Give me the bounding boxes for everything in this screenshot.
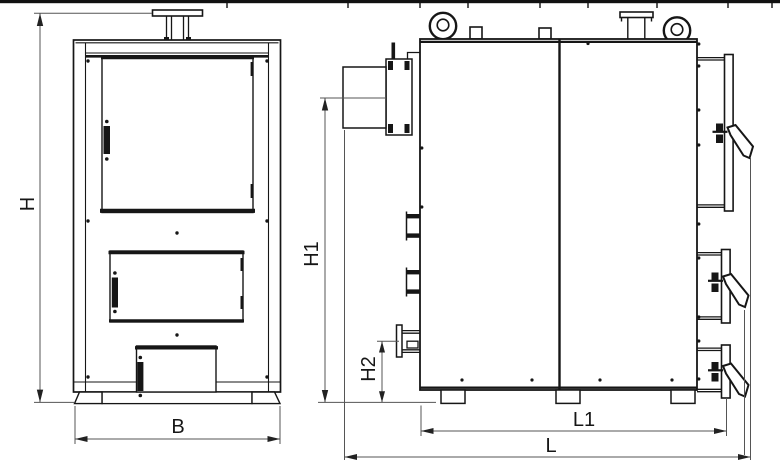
dimension-h-label: H (17, 197, 39, 211)
latch-block (712, 373, 719, 382)
arrowhead (75, 436, 88, 442)
side-foot-center (556, 390, 580, 403)
front-chimney-flange (153, 10, 203, 16)
dimension-l-label: L (545, 435, 556, 457)
side-chimney-pipe (622, 18, 652, 40)
side-foot-right (671, 390, 695, 403)
handle-pin (113, 310, 117, 314)
front-view (74, 10, 281, 404)
handle-pin (113, 271, 117, 275)
body-corner-step (408, 53, 421, 60)
side-door-upper (697, 55, 753, 212)
dimension-h1-label: H1 (301, 241, 323, 267)
arrowhead (714, 428, 727, 434)
top-border (0, 0, 780, 8)
front-ash-door-panel (137, 346, 217, 392)
handle-pin (105, 120, 109, 124)
front-middle-door-handle (112, 278, 118, 308)
latch-block (712, 284, 719, 293)
front-upper-door-handle (104, 126, 111, 154)
flue-mount-plate (386, 59, 412, 135)
dimension-l1-label: L1 (573, 409, 595, 431)
latch-block (716, 135, 723, 144)
dimension-b: B (75, 406, 280, 444)
arrowhead (421, 428, 434, 434)
dimension-b-label: B (171, 416, 184, 438)
side-chimney-flange (620, 12, 653, 18)
lifting-eye-left-hole (437, 19, 449, 31)
top-border-ticks (227, 3, 772, 8)
lifting-eye-right-hole (671, 24, 683, 36)
side-door-lower (697, 345, 749, 398)
boiler-drawing: H B H1 H2 L1 (0, 0, 780, 474)
front-middle-door-panel (110, 251, 243, 322)
side-feet (441, 390, 695, 403)
front-ash-door-handle (137, 362, 143, 391)
front-upper-door-panel (102, 57, 253, 213)
arrowhead (268, 436, 281, 442)
arrowhead (322, 390, 328, 402)
technical-drawing-canvas: H B H1 H2 L1 (0, 0, 780, 474)
arrowhead (379, 341, 385, 352)
side-view (343, 12, 753, 403)
water-stub-lower (407, 268, 421, 297)
flue-bracket-pin (392, 43, 396, 60)
flue-duct (343, 43, 420, 136)
top-tab-left (470, 27, 482, 39)
side-chimney (620, 12, 653, 39)
front-base-foot-right (252, 392, 280, 404)
arrowhead (322, 98, 328, 111)
front-base (75, 392, 281, 404)
side-foot-left (441, 390, 465, 403)
handle-pin (139, 356, 143, 360)
front-base-foot-left (75, 392, 103, 404)
drain-pipe-step (407, 341, 418, 348)
front-ash-door (135, 346, 218, 397)
drain-pipe (397, 325, 421, 357)
front-chimney-pipe (167, 16, 189, 40)
front-chimney (153, 10, 203, 40)
front-upper-door (100, 57, 255, 213)
handle-pin (139, 394, 143, 398)
front-middle-door (109, 251, 245, 322)
handle-pin (105, 157, 109, 161)
dimension-h2: H2 (358, 341, 399, 402)
arrowhead (37, 390, 43, 403)
arrowhead (379, 391, 385, 402)
water-stub-upper (407, 212, 421, 241)
top-tab-right (539, 28, 551, 39)
side-door-middle (697, 250, 749, 324)
front-base-plate (102, 392, 252, 404)
dimension-h2-label: H2 (358, 356, 380, 382)
arrowhead (37, 13, 43, 26)
top-border-bar (0, 0, 780, 3)
arrowhead (345, 454, 358, 460)
